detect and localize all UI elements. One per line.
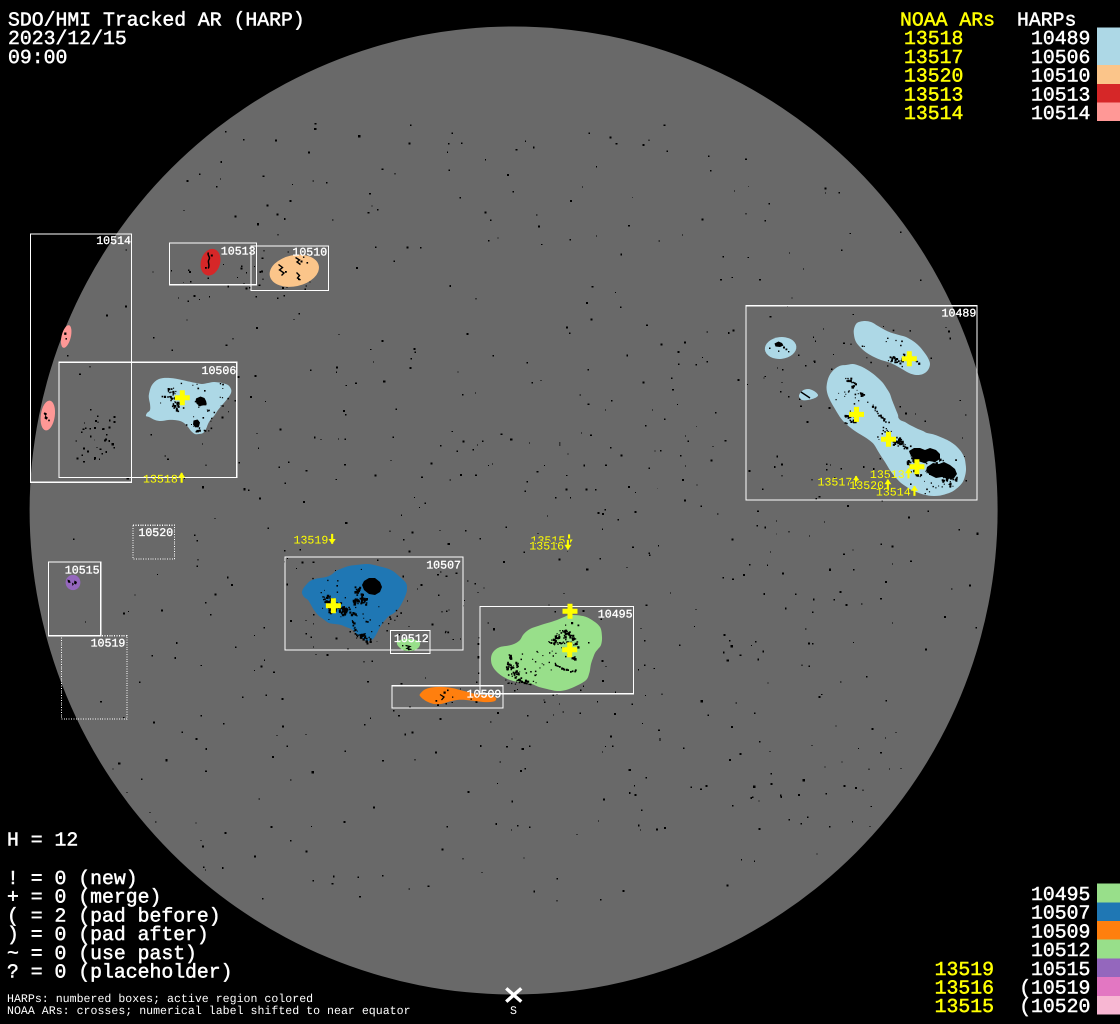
svg-text:10512: 10512 bbox=[394, 633, 429, 646]
svg-text:H = 12: H = 12 bbox=[7, 830, 78, 852]
svg-text:13518: 13518 bbox=[143, 473, 178, 486]
svg-text:10514: 10514 bbox=[1031, 103, 1090, 125]
svg-text:10510: 10510 bbox=[292, 246, 327, 259]
svg-text:13514: 13514 bbox=[904, 103, 963, 125]
svg-text:13515: 13515 bbox=[935, 996, 994, 1018]
svg-text:13519: 13519 bbox=[294, 535, 329, 548]
svg-text:10514: 10514 bbox=[96, 235, 131, 248]
svg-text:? = 0 (placeholder): ? = 0 (placeholder) bbox=[7, 962, 233, 984]
svg-text:10507: 10507 bbox=[426, 560, 461, 573]
svg-text:NOAA ARs: crosses; numerical l: NOAA ARs: crosses; numerical label shift… bbox=[7, 1005, 411, 1018]
svg-text:13514: 13514 bbox=[876, 487, 911, 500]
svg-text:10509: 10509 bbox=[467, 689, 502, 702]
svg-text:09:00: 09:00 bbox=[8, 47, 67, 69]
svg-text:10515: 10515 bbox=[65, 565, 100, 578]
svg-text:10489: 10489 bbox=[942, 308, 977, 321]
svg-text:10506: 10506 bbox=[202, 365, 237, 378]
svg-text:10519: 10519 bbox=[91, 638, 126, 651]
svg-text:S: S bbox=[510, 1005, 517, 1018]
svg-text:10495: 10495 bbox=[598, 609, 633, 622]
svg-text:13517: 13517 bbox=[818, 477, 853, 490]
svg-text:10520: 10520 bbox=[138, 527, 173, 540]
svg-text:(10520: (10520 bbox=[1019, 996, 1090, 1018]
svg-text:13516: 13516 bbox=[529, 540, 564, 553]
